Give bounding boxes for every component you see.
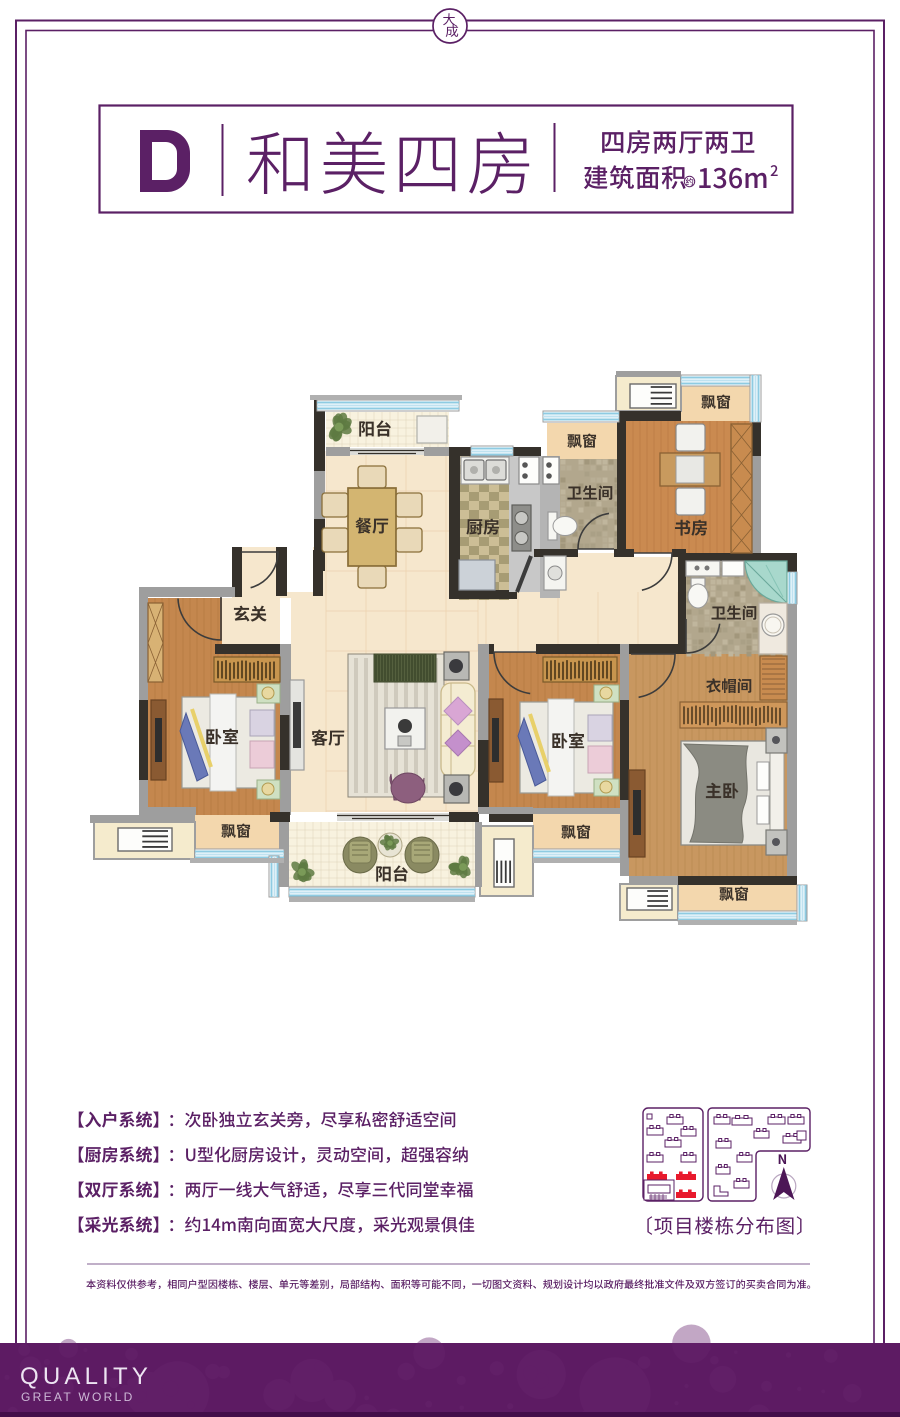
svg-text:QUALITY: QUALITY (20, 1363, 152, 1390)
svg-text:GREAT WORLD: GREAT WORLD (21, 1390, 135, 1404)
